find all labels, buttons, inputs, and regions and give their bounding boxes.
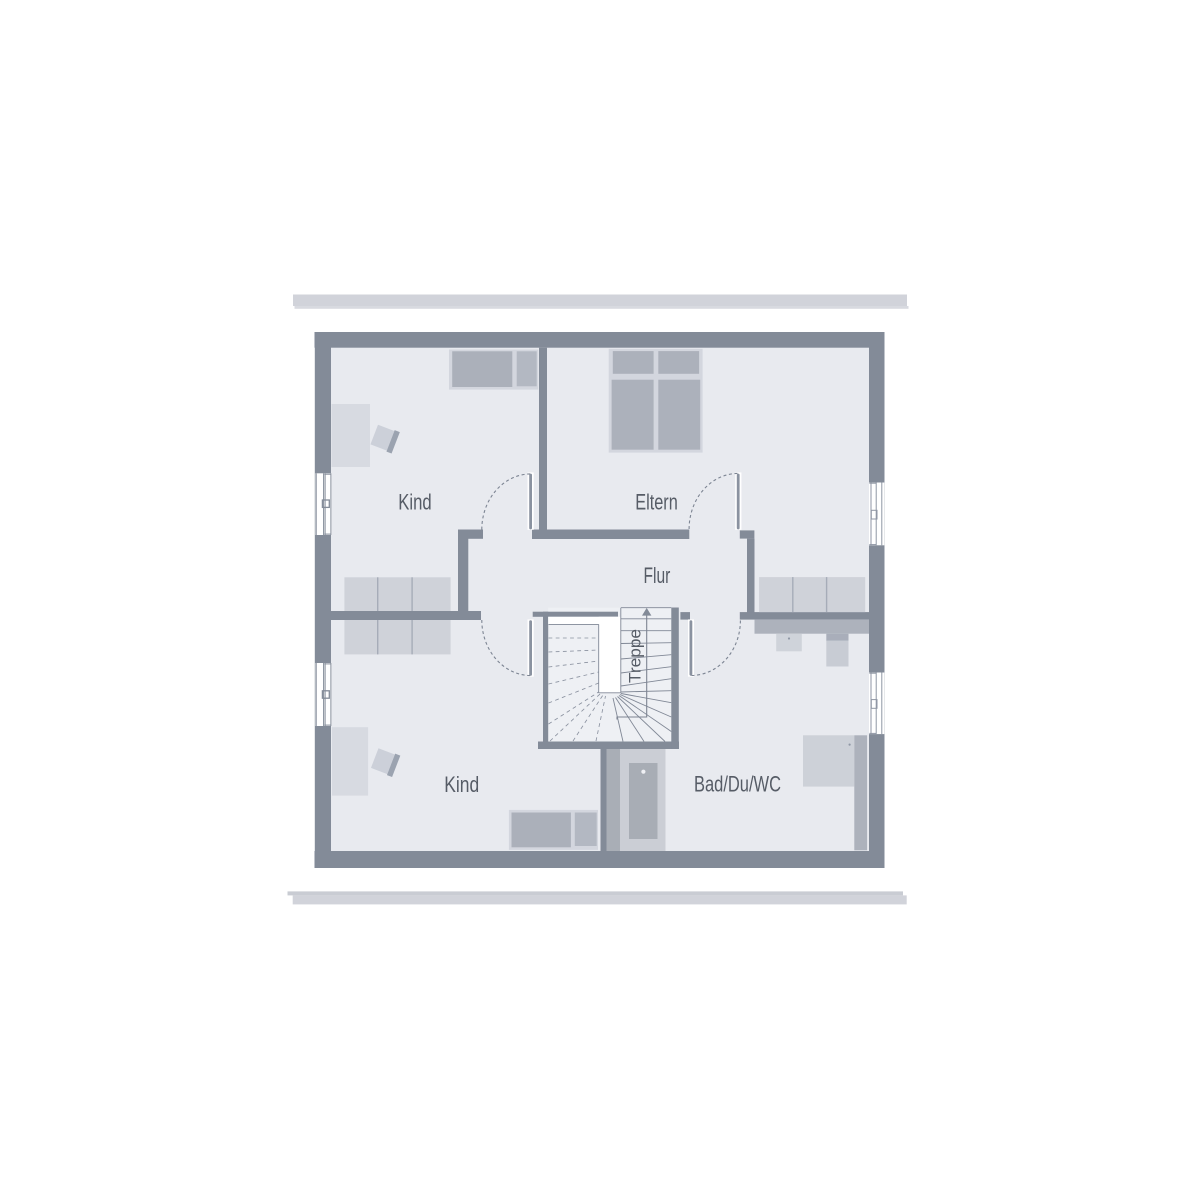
svg-text:Flur: Flur xyxy=(644,563,671,588)
svg-text:Treppe: Treppe xyxy=(626,629,645,683)
svg-text:Bad/Du/WC: Bad/Du/WC xyxy=(694,772,781,797)
svg-text:Kind: Kind xyxy=(444,772,479,797)
svg-text:Kind: Kind xyxy=(398,490,431,515)
svg-text:Eltern: Eltern xyxy=(635,489,678,514)
